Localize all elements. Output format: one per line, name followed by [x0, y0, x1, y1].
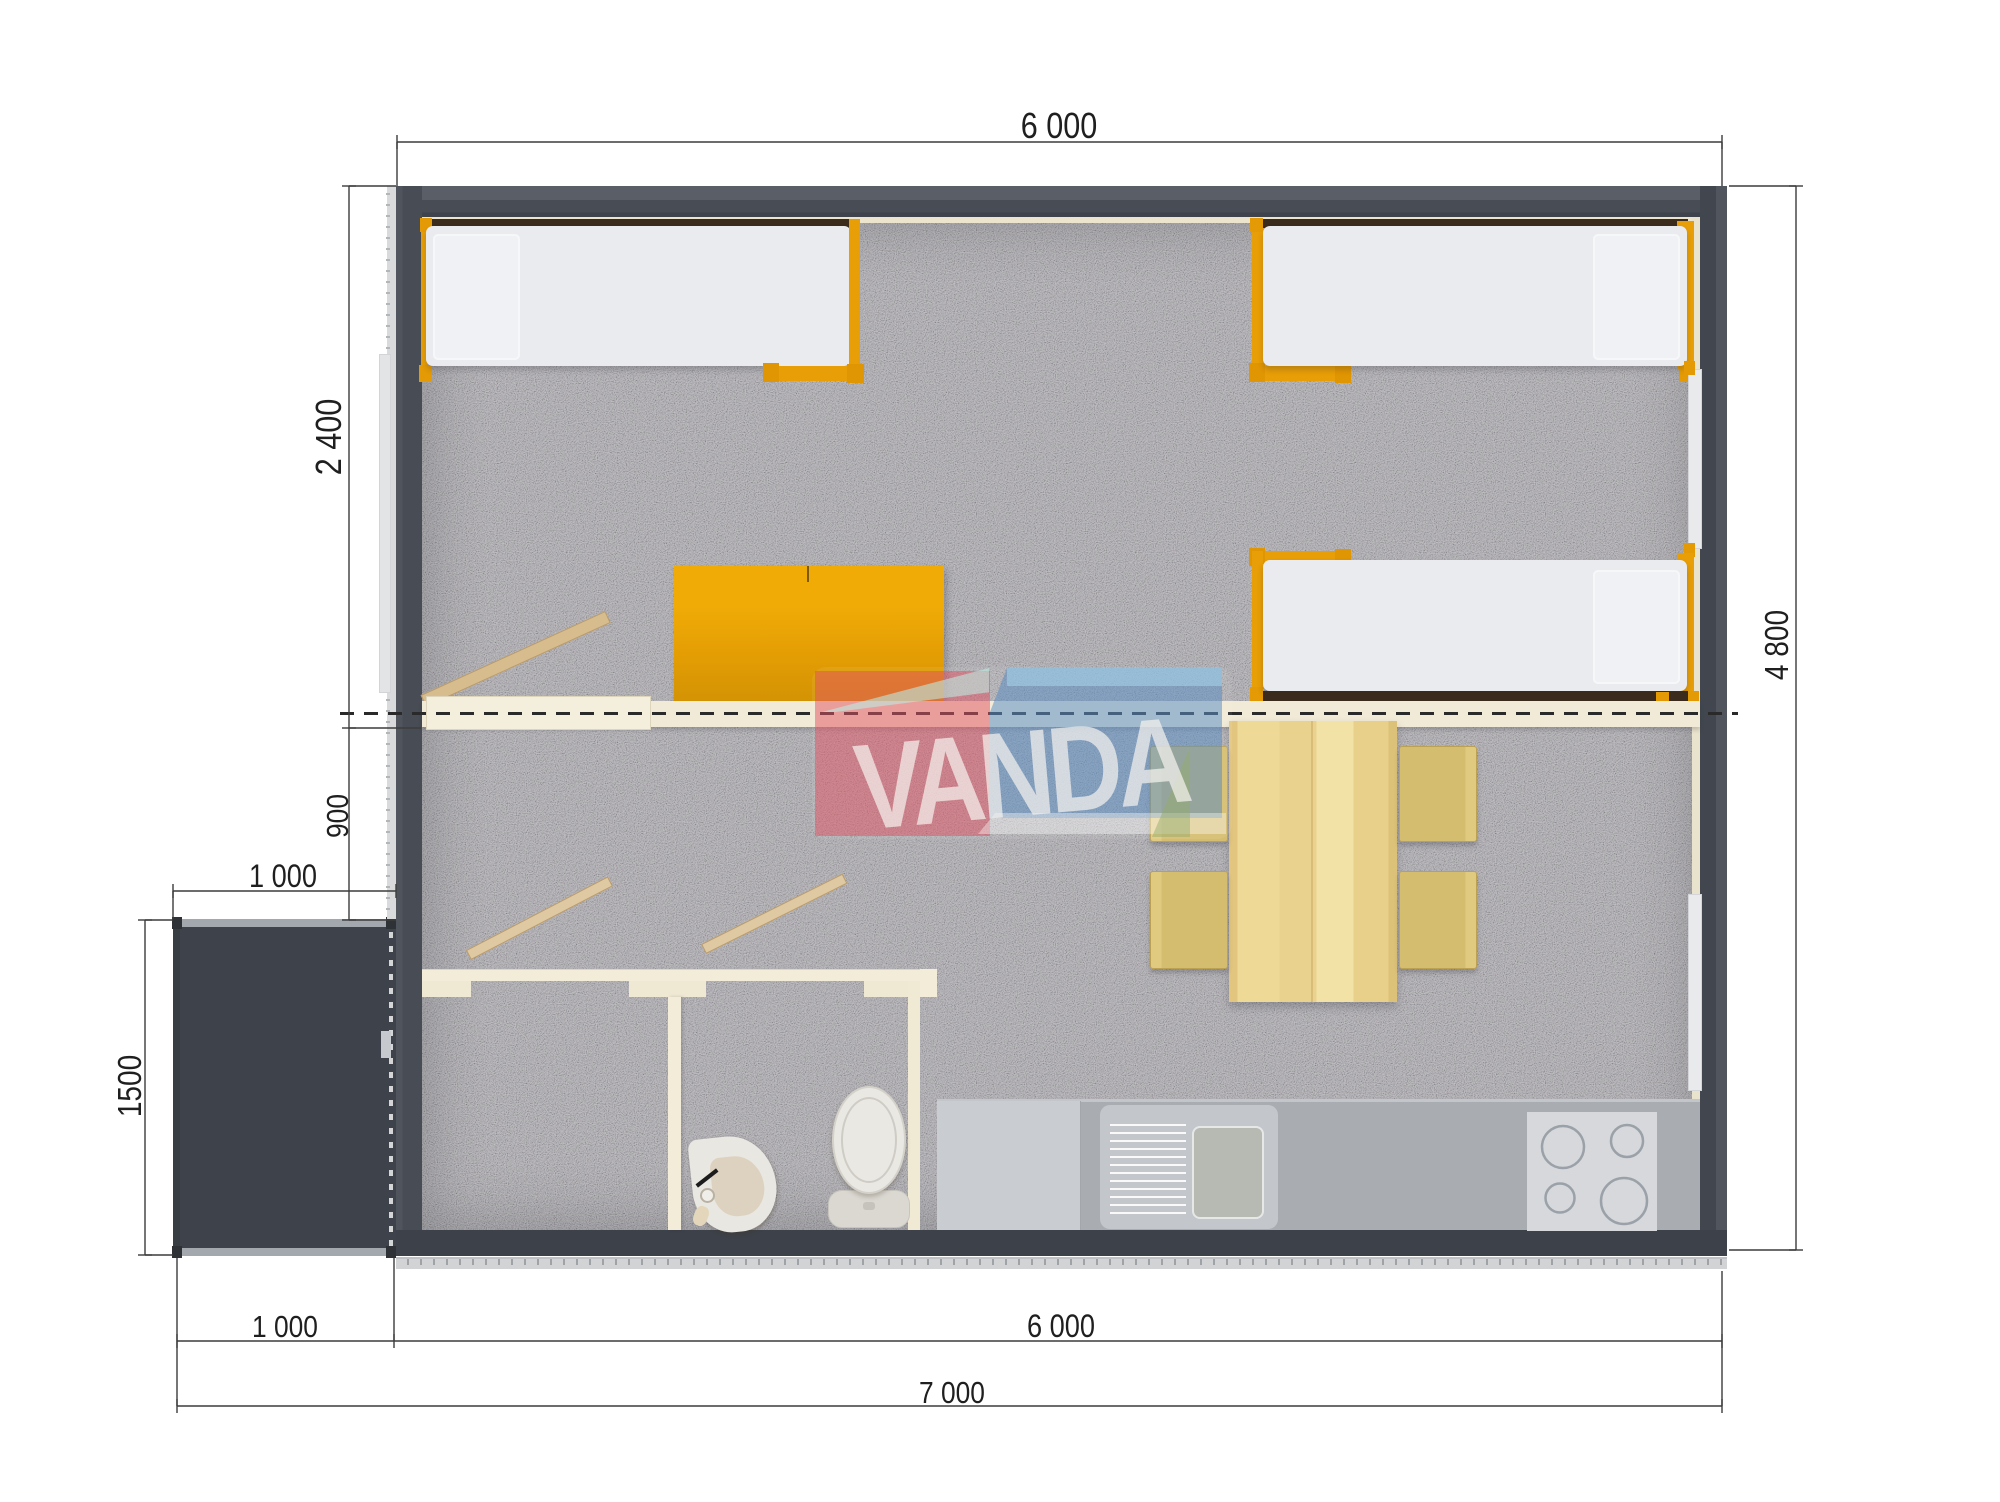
svg-text:4 800: 4 800	[1759, 610, 1796, 680]
svg-text:2 400: 2 400	[310, 399, 350, 476]
svg-text:6 000: 6 000	[1021, 107, 1098, 147]
svg-text:1500: 1500	[112, 1055, 149, 1117]
svg-text:900: 900	[321, 794, 355, 838]
svg-text:1 000: 1 000	[249, 859, 317, 895]
svg-text:6 000: 6 000	[1027, 1309, 1095, 1345]
svg-text:1 000: 1 000	[252, 1310, 318, 1344]
svg-text:7 000: 7 000	[919, 1376, 985, 1410]
